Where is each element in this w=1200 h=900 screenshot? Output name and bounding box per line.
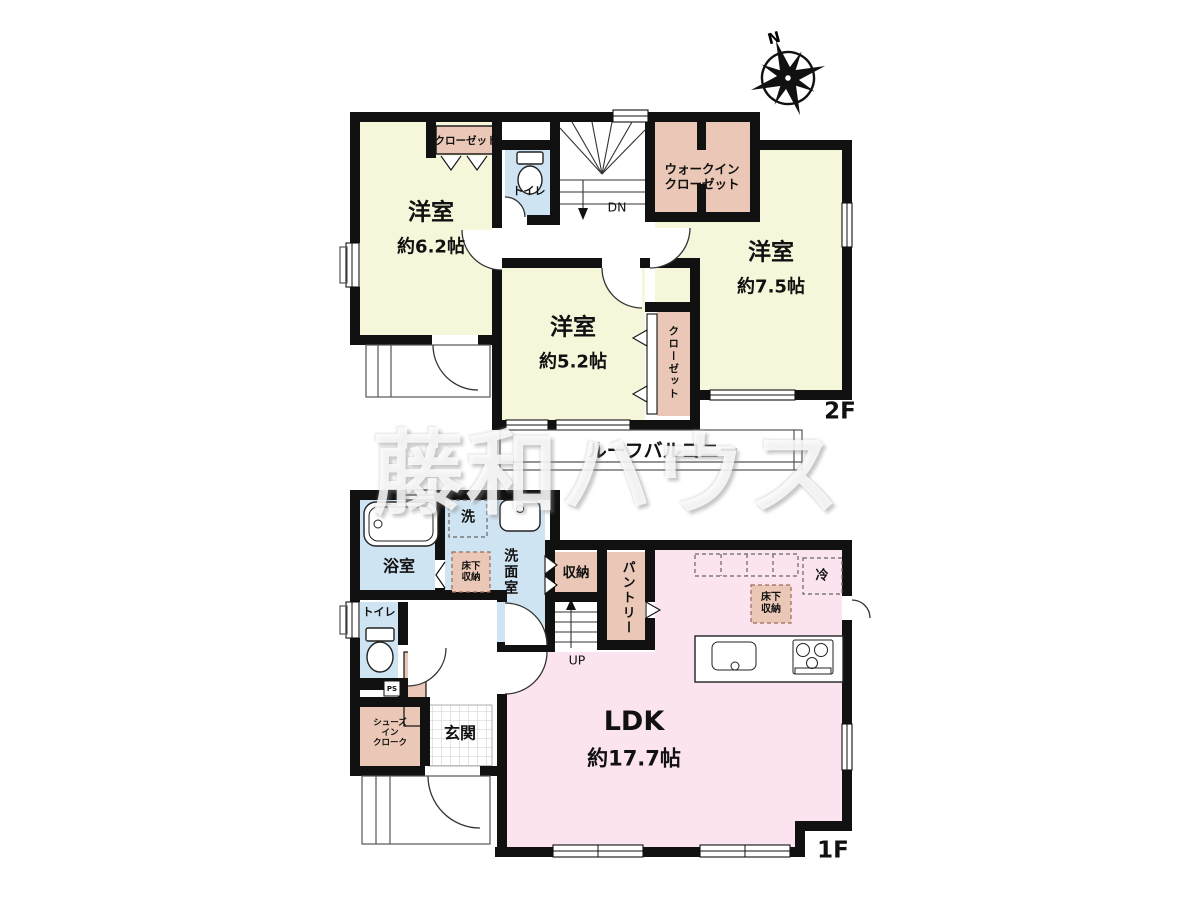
door-arc [852,600,870,618]
refrigerator-label: 冷 [815,568,828,583]
window [842,724,852,770]
washroom-label: 洗面室 [502,548,519,596]
window [553,845,643,857]
room-6-2-name: 洋室 [408,199,454,226]
room-5-2-size: 約5.2帖 [539,351,607,372]
pipe-space-label: PS [387,685,397,693]
floor1-label: 1F [817,837,849,864]
bathroom-label: 浴室 [383,558,415,577]
down-arrow-icon [578,208,588,220]
walk-in-closet-line2: クローゼット [664,177,739,192]
window [613,110,648,122]
sic-line3: クローク [373,738,407,748]
ldk-name: LDK [604,706,665,738]
underfloor-line1: 床下 [461,561,480,572]
room-7-5-upper [760,150,842,222]
floorplan-canvas: クローゼット トイレ 洋室 約6.2帖 DN ウォークイン クローゼット 洋室 … [0,0,1200,900]
sic-line1: シューズ [373,718,407,728]
kitchen-counter [695,636,843,682]
ldk-size: 約17.7帖 [587,747,681,772]
window [340,243,359,287]
walk-in-closet-line1: ウォークイン [664,162,739,177]
door-arc [433,345,478,390]
storage-label: 収納 [563,566,590,582]
toilet-1f-label: トイレ [363,607,396,620]
underfloor-storage-kitchen-label: 床下 収納 [761,592,781,616]
toilet-icon [366,628,394,672]
room-7-5-name: 洋室 [748,239,794,266]
room-7-5-size: 約7.5帖 [737,276,805,297]
underfloor-storage-wash-label: 床下 収納 [461,561,480,583]
closet-door-strip [647,314,657,414]
window [340,602,359,638]
window [710,390,795,400]
window [842,203,852,247]
underfloor-line2: 収納 [761,604,781,616]
entrance-label: 玄関 [444,725,476,744]
closet-side-label: クローゼット [667,326,679,401]
folding-door [436,562,445,588]
walk-in-closet-label: ウォークイン クローゼット [664,162,739,192]
stairs-2f [560,122,645,220]
watermark: 藤和ハウス [372,400,842,533]
stairs-1f [555,599,597,648]
shoes-in-closet-label: シューズ イン クローク [373,718,407,748]
stairs-down-label: DN [608,201,627,216]
stairs-up-label: UP [569,654,586,669]
underfloor-line1: 床下 [761,592,781,604]
underfloor-line2: 収納 [461,572,480,583]
room-5-2-name: 洋室 [550,314,596,341]
toilet-2f-label: トイレ [513,186,546,199]
closet-top-label: クローゼット [435,135,498,147]
window [700,845,790,857]
pantry-label: パントリー [619,561,634,636]
door-arc [428,776,480,828]
room-6-2-size: 約6.2帖 [397,236,465,257]
sic-line2: イン [373,728,407,738]
